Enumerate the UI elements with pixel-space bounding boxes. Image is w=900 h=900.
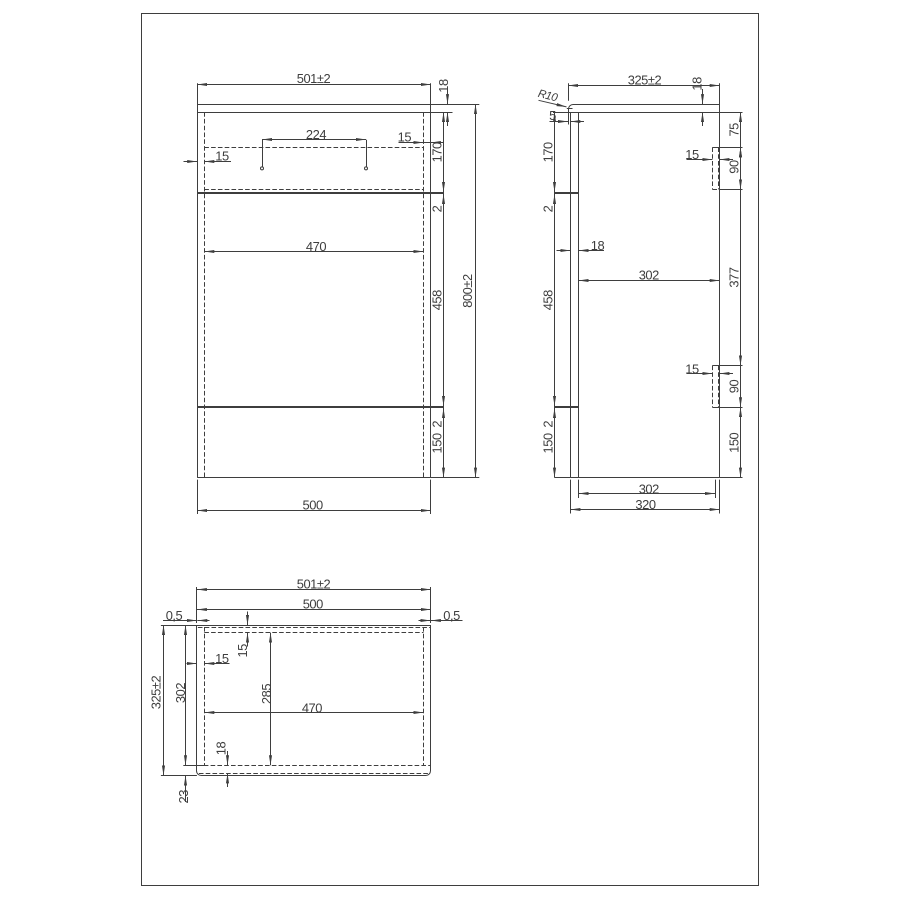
svg-text:325±2: 325±2 — [148, 675, 163, 709]
svg-text:5: 5 — [549, 108, 556, 123]
svg-text:320: 320 — [635, 497, 655, 512]
svg-text:500: 500 — [303, 498, 323, 513]
svg-text:501±2: 501±2 — [297, 71, 331, 86]
svg-text:458: 458 — [541, 290, 556, 310]
svg-text:285: 285 — [259, 684, 274, 704]
svg-text:90: 90 — [726, 160, 741, 174]
svg-text:458: 458 — [430, 290, 445, 310]
svg-text:18: 18 — [436, 79, 451, 93]
svg-text:500: 500 — [303, 597, 323, 612]
svg-text:2: 2 — [541, 205, 556, 212]
svg-text:2: 2 — [541, 421, 556, 428]
svg-text:15: 15 — [685, 361, 699, 376]
svg-text:2: 2 — [430, 421, 445, 428]
svg-text:170: 170 — [430, 142, 445, 162]
svg-text:170: 170 — [541, 142, 556, 162]
svg-text:302: 302 — [173, 683, 188, 703]
svg-text:15: 15 — [235, 644, 250, 658]
svg-text:377: 377 — [726, 267, 741, 287]
svg-text:23: 23 — [176, 790, 191, 804]
svg-text:150: 150 — [430, 433, 445, 453]
svg-text:470: 470 — [302, 700, 322, 715]
svg-text:150: 150 — [726, 432, 741, 452]
svg-text:470: 470 — [306, 239, 326, 254]
svg-text:2: 2 — [430, 205, 445, 212]
svg-text:15: 15 — [685, 147, 699, 162]
svg-text:325±2: 325±2 — [628, 72, 662, 87]
svg-text:18: 18 — [213, 742, 228, 756]
svg-text:224: 224 — [306, 127, 326, 142]
svg-text:302: 302 — [639, 481, 659, 496]
svg-text:18: 18 — [591, 238, 605, 253]
svg-text:90: 90 — [726, 380, 741, 394]
svg-text:0,5: 0,5 — [166, 608, 183, 623]
svg-text:800±2: 800±2 — [460, 274, 475, 308]
svg-text:75: 75 — [726, 123, 741, 137]
svg-text:15: 15 — [215, 149, 229, 164]
svg-text:302: 302 — [639, 268, 659, 283]
svg-text:501±2: 501±2 — [297, 576, 331, 591]
svg-text:150: 150 — [541, 433, 556, 453]
svg-text:15: 15 — [398, 130, 412, 145]
svg-text:0,5: 0,5 — [443, 608, 460, 623]
svg-text:15: 15 — [215, 651, 229, 666]
svg-text:18: 18 — [689, 77, 704, 91]
